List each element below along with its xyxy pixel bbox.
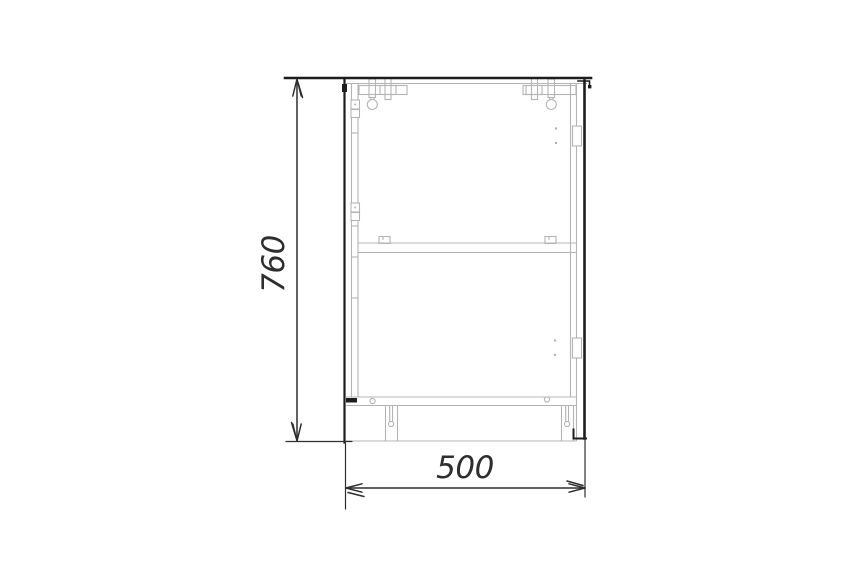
dimension-annotations: 760 500 [256,79,585,509]
drawing-canvas: 760 500 [0,0,856,571]
top-connector-fittings-right [523,78,576,110]
middle-shelf [358,237,577,253]
height-dimension: 760 [256,79,352,509]
cam-lock-icon [385,78,391,100]
bottom-left-joint-mark [346,398,357,403]
width-dimension-label: 500 [436,450,494,486]
cabinet-detail-lines [346,78,587,441]
cam-lock-icon [532,78,538,100]
right-leg [562,406,574,442]
dimension-arrow-left-icon [346,484,364,497]
door-top-hook-tip [588,85,591,88]
height-dimension-label: 760 [256,235,292,293]
left-top-joint-mark [342,84,347,92]
top-connector-fittings-left [359,78,407,110]
bottom-panel [346,397,577,406]
cabinet-technical-drawing: 760 500 [0,0,856,571]
hinge-plate-bottom [554,338,582,358]
hinge-plate-top [555,126,582,146]
screw-head-icon [370,398,375,403]
left-leg [386,406,398,442]
cabinet-outline [285,78,591,443]
dimension-arrow-right-icon [567,481,585,492]
width-dimension: 500 [346,439,585,498]
screw-head-icon [546,100,556,110]
mounting-rail-left [359,86,407,95]
screw-head-icon [544,397,549,402]
back-panel-strip [351,84,360,397]
screw-head-icon [367,100,377,110]
